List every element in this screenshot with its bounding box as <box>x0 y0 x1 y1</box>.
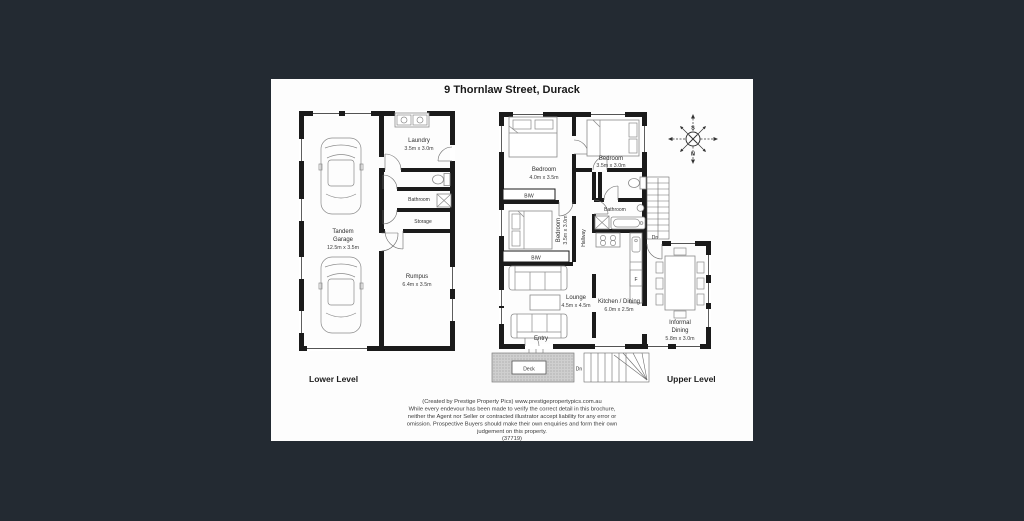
room-dims-rumpus: 6.4m x 3.5m <box>402 282 432 288</box>
footer-line-6: (37719) <box>502 436 522 441</box>
shower-icon-upper <box>595 216 609 229</box>
floorplan-sheet: 9 Thornlaw Street, Durack <box>271 79 753 441</box>
room-dims-bedroom3: 3.5m x 3.0m <box>563 215 569 245</box>
bed-icon-bedroom1 <box>509 117 557 157</box>
deck-dn-label: Dn <box>576 367 583 373</box>
room-dims-kitchen: 6.0m x 2.5m <box>604 307 634 313</box>
footer-disclaimer: (Created by Prestige Property Pics) www.… <box>407 399 617 441</box>
room-label-hallway: Hallway <box>581 229 587 247</box>
upper-level-plan: F <box>492 112 711 382</box>
room-label-biw1: BIW <box>524 194 534 200</box>
room-dims-garage: 12.5m x 3.5m <box>327 245 360 251</box>
footer-line-5: judgement on this property. <box>476 429 547 435</box>
kitchen-bench-icon <box>630 233 642 303</box>
footer-line-2: While every endevour has been made to ve… <box>409 407 616 413</box>
fridge-label: F <box>634 277 637 283</box>
upper-level-label: Upper Level <box>667 374 716 384</box>
room-label-bathroom: Bathroom <box>408 197 430 203</box>
page-background: 9 Thornlaw Street, Durack <box>0 0 1024 521</box>
sofa-icon-1 <box>509 266 567 290</box>
basin-icon <box>637 205 644 212</box>
bed-icon-bedroom3 <box>509 211 552 249</box>
room-label-bathroom-upper: Bathroom <box>604 207 626 213</box>
room-label-garage-2: Garage <box>333 237 354 243</box>
lower-level-label: Lower Level <box>309 374 358 384</box>
stove-icon <box>596 233 620 247</box>
room-label-bedroom2: Bedroom <box>599 156 623 162</box>
room-dims-bedroom2: 3.5m x 3.0m <box>596 163 626 169</box>
toilet-icon <box>433 174 451 186</box>
room-label-storage: Storage <box>414 219 432 225</box>
room-label-kitchen: Kitchen / Dining <box>598 299 640 305</box>
room-dims-bedroom1: 4.0m x 3.5m <box>529 175 559 181</box>
compass-north-label: N <box>691 152 695 158</box>
room-dims-laundry: 3.5m x 3.0m <box>404 146 434 152</box>
compass-south-label: S <box>691 126 695 132</box>
room-label-garage-1: Tandem <box>332 229 353 235</box>
stairs-dn-label: Dn <box>652 235 659 241</box>
room-label-bedroom1: Bedroom <box>532 167 556 173</box>
room-label-biw2: BIW <box>531 256 541 262</box>
laundry-tub-icon <box>395 113 429 127</box>
sofa-icon-2 <box>511 314 567 338</box>
deck-label: Deck <box>523 367 535 373</box>
coffee-table-icon <box>530 295 560 310</box>
external-stairs-icon <box>584 353 649 382</box>
footer-line-4: omission. Prospective Buyers should make… <box>407 422 617 428</box>
room-dims-lounge: 4.5m x 4.5m <box>561 303 591 309</box>
footer-line-3: neither the Agent nor Seller or contract… <box>408 414 617 420</box>
bed-icon-bedroom2 <box>587 120 639 156</box>
room-label-entry: Entry <box>534 336 548 342</box>
stairs-icon <box>647 177 669 239</box>
room-label-laundry: Laundry <box>408 138 430 144</box>
room-dims-dining: 5.8m x 3.0m <box>665 336 695 342</box>
shower-icon <box>437 194 451 207</box>
floorplan-drawing: 9 Thornlaw Street, Durack <box>271 79 753 441</box>
bathtub-icon <box>611 217 645 229</box>
lower-level-plan: Laundry 3.5m x 3.0m Bathroom Storage Tan… <box>299 111 455 351</box>
dining-table-icon <box>656 248 704 318</box>
room-label-rumpus: Rumpus <box>406 274 428 280</box>
toilet-icon-upper <box>629 177 647 189</box>
room-label-bedroom3: Bedroom <box>556 218 562 242</box>
room-label-dining-2: Dining <box>671 328 688 334</box>
footer-line-1: (Created by Prestige Property Pics) www.… <box>422 399 601 405</box>
room-label-dining-1: Informal <box>669 320 691 326</box>
room-label-lounge: Lounge <box>566 295 587 301</box>
compass-icon: S N <box>668 114 718 164</box>
page-title: 9 Thornlaw Street, Durack <box>444 84 581 96</box>
